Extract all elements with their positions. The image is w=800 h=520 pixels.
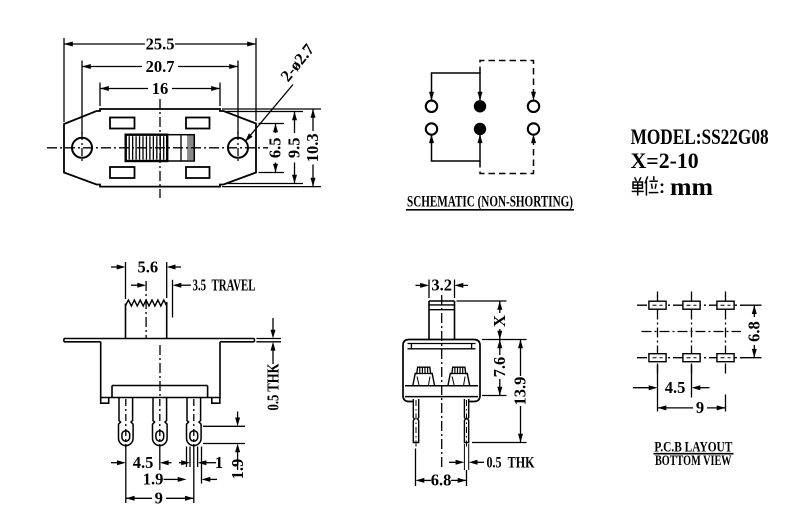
svg-text:1: 1 xyxy=(215,453,223,472)
svg-text:0.5 THK: 0.5 THK xyxy=(487,455,535,472)
svg-text:MODEL:SS22G08: MODEL:SS22G08 xyxy=(631,124,769,149)
svg-text:6.8: 6.8 xyxy=(431,471,452,490)
svg-text:1.9: 1.9 xyxy=(228,459,247,480)
svg-text:9: 9 xyxy=(155,489,163,508)
svg-text:5.6: 5.6 xyxy=(137,258,158,277)
svg-text:X=2-10: X=2-10 xyxy=(631,148,699,173)
svg-text:6.5: 6.5 xyxy=(266,137,285,158)
svg-text:25.5: 25.5 xyxy=(146,34,175,53)
svg-text:9: 9 xyxy=(696,398,704,417)
svg-text:SCHEMATIC (NON-SHORTING): SCHEMATIC (NON-SHORTING) xyxy=(407,194,573,211)
svg-text:3.2: 3.2 xyxy=(431,276,452,295)
svg-text:3.5 TRAVEL: 3.5 TRAVEL xyxy=(193,276,256,295)
svg-text:1.9: 1.9 xyxy=(143,470,164,489)
svg-text:7.6: 7.6 xyxy=(490,357,509,378)
svg-text:16: 16 xyxy=(152,79,169,98)
svg-text:9.5: 9.5 xyxy=(285,137,304,158)
svg-text:13.9: 13.9 xyxy=(511,377,530,406)
svg-text:X: X xyxy=(490,315,509,327)
svg-text:mm: mm xyxy=(670,174,713,201)
svg-text:20.7: 20.7 xyxy=(146,57,175,76)
svg-text:6.8: 6.8 xyxy=(744,321,763,342)
svg-text:0.5 THK: 0.5 THK xyxy=(264,363,283,410)
svg-text:BOTTOM VIEW: BOTTOM VIEW xyxy=(655,453,732,469)
svg-text:10.3: 10.3 xyxy=(303,133,322,162)
svg-text:4.5: 4.5 xyxy=(665,378,686,397)
